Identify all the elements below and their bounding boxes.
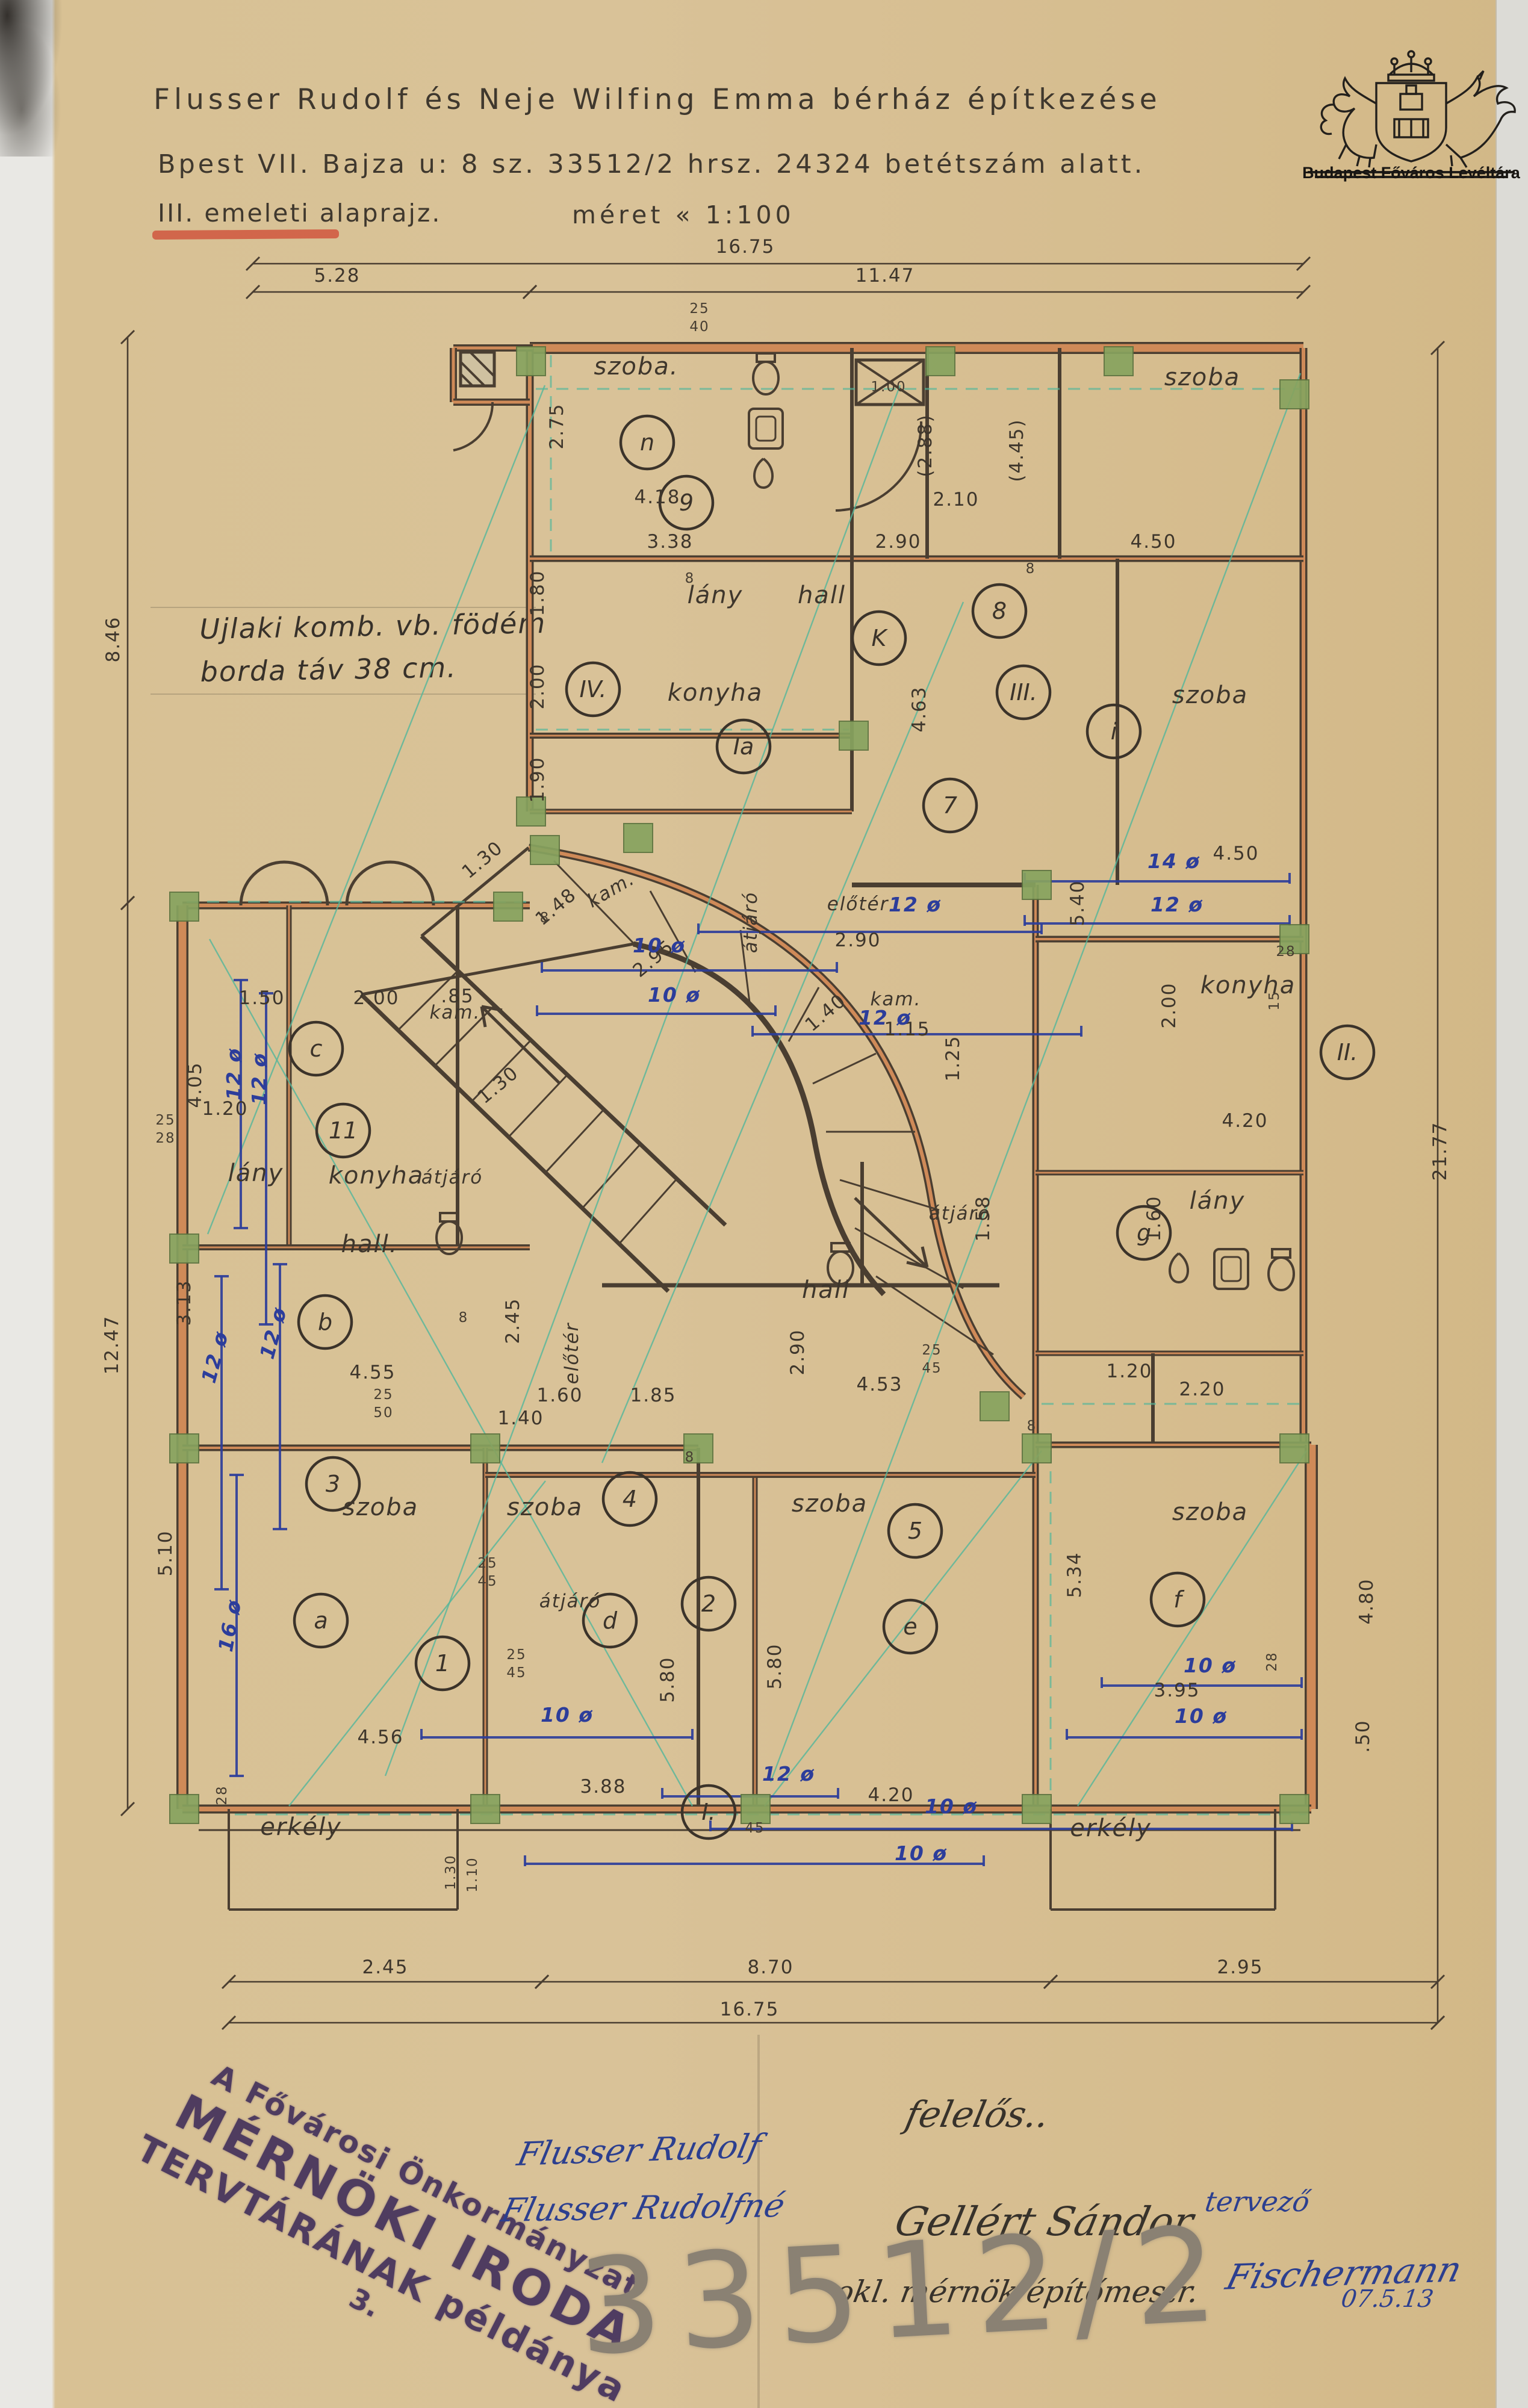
plan-annotation: 10 ø	[633, 934, 686, 957]
plan-annotation: 25	[922, 1342, 942, 1358]
room-circle-label: III.	[1010, 679, 1037, 706]
room-circle-label: e	[903, 1613, 917, 1640]
plan-annotation: hall	[802, 1276, 850, 1304]
plan-annotation: 12 ø	[197, 1328, 233, 1385]
plan-annotation: 2.00	[527, 663, 548, 709]
column-marker	[170, 1795, 199, 1823]
plan-annotation: 12 ø	[222, 1047, 246, 1100]
plan-annotation: lány	[688, 582, 744, 609]
plan-annotation: 5.10	[155, 1530, 176, 1576]
column-marker	[170, 1234, 199, 1263]
plan-annotation: 28	[1264, 1651, 1280, 1671]
plan-annotation: 28	[1276, 944, 1296, 960]
plan-annotation: 1.10	[465, 1857, 480, 1892]
plan-annotation: 2.20	[1179, 1379, 1225, 1400]
room-circle-label: I.	[701, 1799, 715, 1825]
plan-annotation: 28	[214, 1785, 230, 1805]
plan-annotation: 45	[506, 1665, 526, 1681]
plan-annotation: 45	[745, 1820, 765, 1836]
plan-annotation: 5.34	[1064, 1551, 1085, 1598]
plan-annotation: 15	[1267, 990, 1282, 1010]
plan-annotation: 5.28	[314, 265, 360, 287]
plan-annotation: 10 ø	[1184, 1654, 1237, 1677]
teal-guide	[208, 385, 545, 1234]
plan-annotation: .85	[441, 985, 474, 1007]
stair-step	[545, 1109, 604, 1173]
plan-annotation: 8	[1027, 1418, 1037, 1434]
plan-annotation: 10 ø	[895, 1842, 948, 1865]
room-circle-label: 2	[701, 1590, 716, 1617]
plan-annotation: 2.90	[834, 929, 881, 951]
plan-annotation: 8	[540, 910, 550, 926]
column-marker	[839, 721, 868, 750]
plan-annotation: 2.75	[546, 403, 568, 449]
plan-annotation: 16 ø	[214, 1597, 246, 1654]
column-marker	[517, 347, 545, 376]
plan-annotation: 8	[459, 1310, 469, 1326]
room-circle-label: 3	[326, 1471, 340, 1497]
stair-step	[582, 1144, 640, 1208]
plan-annotation: 1.20	[202, 1098, 248, 1120]
plan-annotation: szoba	[343, 1494, 418, 1521]
plan-annotation: 8	[685, 571, 695, 586]
column-marker	[1022, 1434, 1051, 1463]
teal-guide	[210, 939, 692, 1806]
plan-annotation: 16.75	[716, 236, 775, 258]
room-circle-label: II.	[1337, 1039, 1358, 1066]
plan-annotation: 2.00	[1158, 982, 1180, 1028]
column-marker	[741, 1795, 770, 1823]
plan-annotation: átjáró	[421, 1167, 483, 1188]
plan-annotation: 3.95	[1154, 1680, 1200, 1701]
plan-annotation: hall	[798, 582, 846, 609]
room-circle-label: d	[603, 1607, 618, 1634]
plan-annotation: 2.00	[353, 987, 399, 1009]
fixtures	[241, 352, 1294, 1290]
column-marker	[926, 347, 955, 376]
door-arc	[836, 421, 921, 510]
date: 07.5.13	[1340, 2285, 1435, 2313]
owner-signature-2: Flusser Rudolfné	[498, 2186, 789, 2229]
toilet-tank	[440, 1213, 458, 1221]
plan-annotation: 1.30	[443, 1854, 459, 1890]
stair-arrow	[482, 1007, 560, 1084]
plan-annotation: szoba	[1172, 681, 1248, 709]
column-marker	[1022, 870, 1051, 899]
plan-annotation: 12.47	[101, 1315, 123, 1375]
plan-annotation: előtér	[827, 893, 889, 915]
toilet-tank	[757, 353, 775, 362]
plan-annotation: konyha	[329, 1162, 424, 1190]
teal-guide	[289, 1481, 545, 1806]
plan-annotation: 1.30	[473, 1062, 523, 1108]
plan-annotation: .50	[1352, 1719, 1374, 1752]
plan-annotation: (4.45)	[1006, 418, 1028, 482]
plan-annotation: 1.30	[458, 837, 507, 883]
plan-annotation: 8	[685, 1450, 695, 1465]
column-marker	[494, 892, 523, 921]
plan-annotation: 5.40	[1067, 880, 1089, 926]
plan-annotation: 11.47	[856, 265, 915, 287]
plan-annotation: 1.90	[527, 756, 548, 802]
plan-annotation: 1.00	[871, 379, 906, 395]
room-circle-label: 4	[623, 1486, 637, 1512]
plan-annotation: 2.10	[933, 489, 979, 510]
column-marker	[471, 1434, 500, 1463]
plan-annotation: 14 ø	[1148, 849, 1200, 873]
room-circle-label: a	[314, 1607, 328, 1634]
room-circle-label: 1	[435, 1650, 450, 1677]
plan-annotation: 4.18	[634, 486, 680, 508]
plan-annotation: 4.55	[349, 1362, 396, 1383]
room-circle-label: 11	[329, 1117, 358, 1144]
toilet-icon	[1269, 1258, 1294, 1290]
sink-icon	[749, 409, 783, 448]
column-marker	[1280, 1434, 1309, 1463]
plan-annotation: előtér	[561, 1322, 583, 1384]
plan-annotation: 4.80	[1356, 1578, 1377, 1624]
plan-annotation: 2.95	[1217, 1956, 1263, 1978]
plan-annotation: szoba	[507, 1494, 583, 1521]
plan-annotation: 12 ø	[859, 1006, 912, 1029]
plan-annotation: kam.	[583, 867, 639, 912]
plan-annotation: szoba	[1172, 1498, 1248, 1526]
plan-annotation: 1.20	[1106, 1361, 1152, 1382]
annotations: szoba.szobalányhallkonyhaszobakonyhalány…	[101, 236, 1451, 2020]
plan-annotation: konyha	[668, 679, 763, 707]
stair-arrow	[855, 1198, 927, 1267]
column-marker	[1022, 1795, 1051, 1823]
bay-window-arcs	[241, 862, 433, 905]
room-circle-label: IV.	[580, 676, 607, 703]
column-marker	[980, 1392, 1009, 1421]
plan-annotation: 1.60	[536, 1385, 583, 1406]
plan-annotation: 1.58	[972, 1195, 994, 1241]
column-marker	[170, 1434, 199, 1463]
plan-annotation: 10 ø	[925, 1795, 978, 1818]
plan-annotation: 1.80	[527, 569, 548, 616]
stair-outer-fill	[529, 848, 1023, 1397]
plan-annotation: 10 ø	[1175, 1704, 1228, 1728]
plan-annotation: 1.60	[1143, 1195, 1165, 1241]
column-marker	[624, 824, 653, 852]
plan-annotation: 1.40	[497, 1407, 544, 1429]
plan-annotation: szoba.	[594, 353, 679, 380]
sink-icon	[1214, 1249, 1248, 1289]
door-arc	[453, 402, 492, 450]
toilet-tank	[1272, 1249, 1290, 1258]
plan-annotation: erkély	[1070, 1814, 1152, 1842]
plan-annotation: 4.53	[856, 1374, 902, 1395]
room-circle-label: b	[318, 1309, 332, 1335]
stair-step	[619, 1179, 677, 1244]
floor-plan-drawing: n98KIII.iIV.Ia7II.gc11b3a14d25efI.szoba.…	[0, 0, 1528, 2408]
plan-annotation: 45	[922, 1361, 942, 1376]
column-marker	[1104, 347, 1133, 376]
plan-annotation: 50	[373, 1405, 393, 1421]
plan-annotation: 1.50	[238, 987, 285, 1009]
plan-annotation: 4.50	[1130, 531, 1176, 553]
plan-annotation: 4.20	[868, 1784, 914, 1806]
sink-basin	[1222, 1257, 1241, 1281]
plan-annotation: 25	[155, 1112, 175, 1128]
sink-basin	[756, 417, 775, 441]
plan-annotation: 3.13	[173, 1279, 195, 1326]
room-circle-label: 7	[943, 792, 957, 819]
room-circle-label: i	[1111, 718, 1117, 745]
column-marker	[1280, 380, 1309, 409]
plan-annotation: 25	[477, 1556, 497, 1571]
plan-annotation: 12 ø	[247, 1052, 271, 1105]
plan-annotation: 12 ø	[762, 1762, 815, 1786]
plan-annotation: 1.25	[942, 1035, 964, 1081]
stair-step	[813, 1053, 876, 1084]
plan-annotation: 12 ø	[889, 893, 942, 916]
plan-annotation: 3.88	[580, 1776, 626, 1798]
plan-annotation: 1.85	[630, 1385, 676, 1406]
plan-annotation: 10 ø	[648, 983, 701, 1007]
plan-annotation: átjáró	[740, 892, 762, 953]
plan-annotation: 25	[689, 301, 709, 317]
plan-annotation: 4.50	[1213, 843, 1259, 864]
stair-step	[509, 1075, 568, 1137]
plan-annotation: 40	[689, 319, 709, 335]
plan-annotation: 28	[155, 1131, 175, 1146]
room-circles: n98KIII.iIV.Ia7II.gc11b3a14d25efI.	[290, 416, 1374, 1839]
plan-annotation: 12 ø	[1151, 893, 1203, 916]
plan-annotation: 8.46	[102, 616, 124, 662]
plan-annotation: 4.20	[1222, 1110, 1268, 1132]
plan-annotation: 4.56	[357, 1727, 403, 1748]
plan-annotation: 10 ø	[541, 1703, 594, 1727]
plan-annotation: 12 ø	[255, 1304, 291, 1361]
plan-annotation: 2.45	[502, 1297, 524, 1344]
column-marker	[530, 836, 559, 864]
plan-annotation: erkély	[260, 1813, 342, 1841]
basin-icon	[754, 459, 772, 488]
plan-annotation: 5.80	[764, 1643, 786, 1689]
scanned-plan-sheet: Flusser Rudolf és Neje Wilfing Emma bérh…	[0, 0, 1528, 2408]
room-circle-label: 5	[908, 1518, 922, 1544]
plan-annotation: 45	[477, 1574, 497, 1589]
plan-annotation: lány	[228, 1159, 284, 1187]
plan-annotation: 25	[373, 1387, 393, 1403]
plan-annotation: 8.70	[747, 1956, 794, 1978]
entry-hatch	[461, 352, 494, 386]
plan-annotation: 2.90	[875, 531, 921, 553]
plan-annotation: átjáró	[539, 1590, 601, 1612]
room-circle-label: K	[872, 625, 889, 651]
room-circle-label: 9	[679, 489, 694, 516]
room-circle-label: c	[310, 1035, 323, 1062]
stair-step	[840, 1180, 939, 1210]
plan-annotation: 25	[506, 1647, 526, 1663]
plan-annotation: 16.75	[720, 1999, 780, 2020]
room-circle-label: Ia	[733, 733, 754, 760]
column-marker	[170, 892, 199, 921]
plan-annotation: lány	[1190, 1187, 1246, 1215]
plan-annotation: 21.77	[1429, 1122, 1451, 1181]
room-circle-label: n	[640, 429, 654, 456]
plan-annotation: 4.63	[908, 686, 930, 732]
stair-outer-wall	[529, 848, 1023, 1397]
plan-annotation: 8	[1026, 561, 1036, 577]
plan-annotation: 1.48	[531, 884, 580, 930]
column-marker	[1280, 1795, 1309, 1823]
plan-annotation: (2.88)	[915, 414, 936, 477]
plan-annotation: 5.80	[657, 1656, 679, 1702]
plan-annotation: szoba	[1164, 364, 1240, 391]
plan-annotation: 3.38	[647, 531, 693, 553]
plan-annotation: 2.45	[362, 1956, 408, 1978]
room-circle-label: f	[1173, 1586, 1185, 1613]
column-marker	[471, 1795, 500, 1823]
felelos-label: felelős..	[902, 2094, 1054, 2136]
basin-icon	[1170, 1253, 1188, 1282]
plan-annotation: hall.	[341, 1230, 399, 1258]
plan-annotation: 2.90	[787, 1329, 809, 1375]
plan-annotation: szoba	[792, 1490, 868, 1518]
room-circle-label: 8	[992, 598, 1007, 624]
